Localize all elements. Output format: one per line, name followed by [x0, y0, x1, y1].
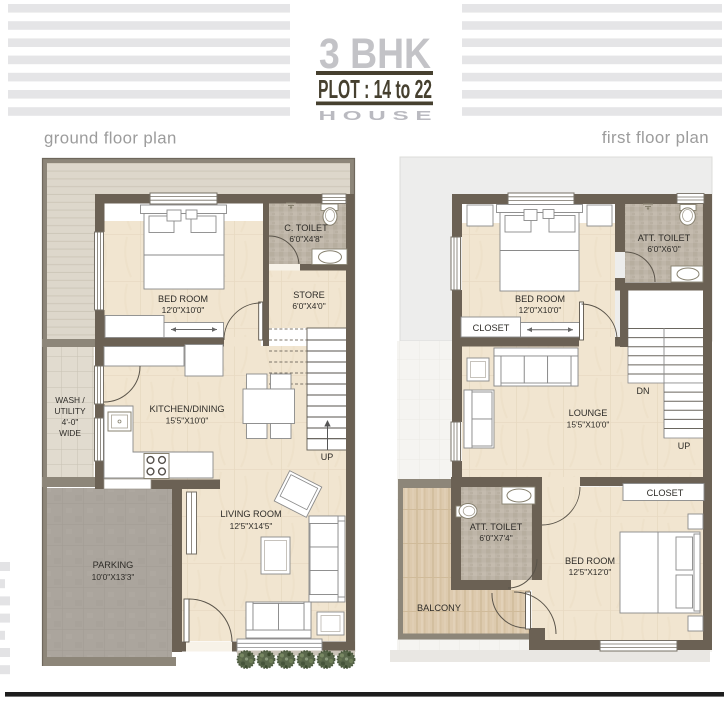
svg-text:KITCHEN/DINING: KITCHEN/DINING — [149, 404, 224, 414]
svg-text:LOUNGE: LOUNGE — [569, 408, 608, 418]
svg-text:CLOSET: CLOSET — [473, 323, 510, 333]
svg-text:15'5"X10'0": 15'5"X10'0" — [567, 420, 610, 430]
svg-text:PARKING: PARKING — [93, 560, 134, 570]
svg-text:ATT. TOILET: ATT. TOILET — [638, 233, 691, 243]
svg-text:UP: UP — [321, 452, 334, 462]
svg-text:15'5"X10'0": 15'5"X10'0" — [166, 416, 209, 426]
svg-text:BALCONY: BALCONY — [417, 603, 461, 613]
svg-text:first floor plan: first floor plan — [602, 128, 709, 147]
svg-text:6'0"X4'8": 6'0"X4'8" — [289, 234, 322, 244]
svg-text:CLOSET: CLOSET — [647, 488, 684, 498]
svg-text:BED ROOM: BED ROOM — [515, 294, 565, 304]
svg-text:3 BHK: 3 BHK — [319, 30, 431, 78]
svg-text:6'0"X4'0": 6'0"X4'0" — [292, 301, 325, 311]
svg-text:12'0"X10'0": 12'0"X10'0" — [162, 305, 205, 315]
svg-text:C. TOILET: C. TOILET — [284, 223, 328, 233]
svg-text:UTILITY: UTILITY — [54, 406, 86, 416]
svg-text:12'5"X12'0": 12'5"X12'0" — [569, 567, 612, 577]
svg-text:BED ROOM: BED ROOM — [158, 294, 208, 304]
svg-text:LIVING ROOM: LIVING ROOM — [220, 509, 281, 519]
svg-text:DN: DN — [637, 386, 650, 396]
svg-text:12'0"X10'0": 12'0"X10'0" — [519, 305, 562, 315]
svg-text:ground floor plan: ground floor plan — [44, 129, 177, 148]
svg-text:4'-0": 4'-0" — [62, 417, 79, 427]
svg-text:6'0"X6'0": 6'0"X6'0" — [647, 244, 680, 254]
svg-text:H O U S E: H O U S E — [319, 108, 433, 123]
svg-text:BED ROOM: BED ROOM — [565, 556, 615, 566]
svg-text:UP: UP — [678, 441, 691, 451]
svg-text:6'0"X7'4": 6'0"X7'4" — [479, 533, 512, 543]
svg-text:WIDE: WIDE — [59, 428, 81, 438]
svg-text:ATT. TOILET: ATT. TOILET — [470, 522, 523, 532]
svg-text:STORE: STORE — [293, 290, 324, 300]
svg-text:PLOT : 14 to 22: PLOT : 14 to 22 — [318, 74, 432, 104]
svg-text:12'5"X14'5": 12'5"X14'5" — [230, 521, 273, 531]
svg-text:10'0"X13'3": 10'0"X13'3" — [92, 572, 135, 582]
svg-text:WASH /: WASH / — [55, 395, 85, 405]
